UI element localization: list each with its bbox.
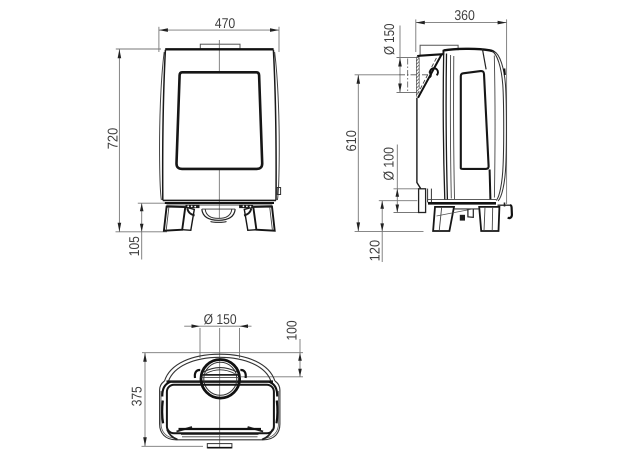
svg-text:100: 100	[285, 320, 301, 340]
svg-text:610: 610	[344, 130, 360, 152]
svg-text:Ø 100: Ø 100	[382, 147, 398, 181]
svg-text:470: 470	[215, 16, 236, 32]
svg-text:105: 105	[127, 236, 143, 256]
svg-text:360: 360	[454, 8, 475, 24]
svg-text:375: 375	[129, 386, 145, 406]
svg-text:720: 720	[106, 128, 122, 150]
svg-text:120: 120	[367, 240, 383, 262]
svg-text:Ø 150: Ø 150	[382, 23, 398, 55]
svg-text:Ø 150: Ø 150	[204, 312, 237, 328]
